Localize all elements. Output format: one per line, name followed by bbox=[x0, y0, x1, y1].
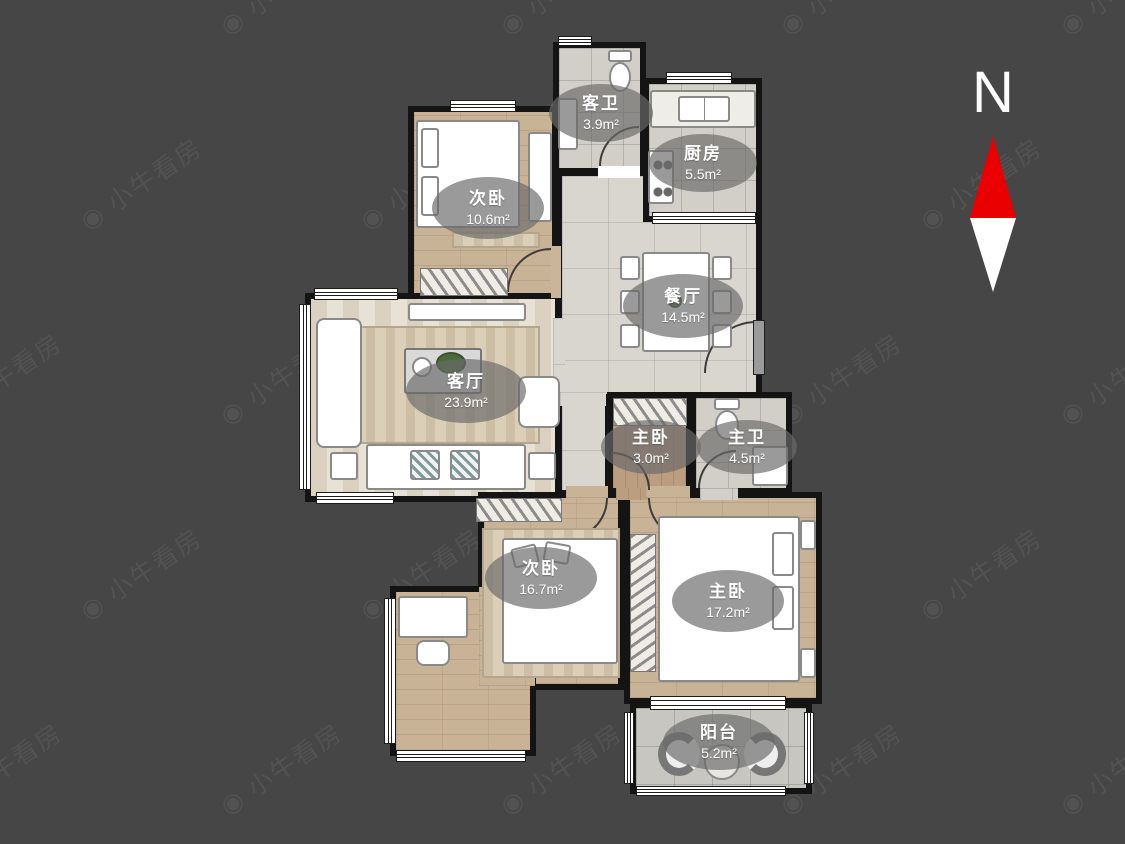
opening-guest-bath-door bbox=[598, 166, 640, 178]
nightstand bbox=[800, 648, 816, 678]
room-name: 次卧 bbox=[522, 558, 560, 580]
sofa bbox=[366, 444, 526, 490]
side-table bbox=[528, 452, 556, 480]
opening-dining-corridor bbox=[560, 392, 606, 406]
room-label-master-bathroom: 主卫 4.5m² bbox=[697, 420, 797, 474]
sofa bbox=[316, 318, 362, 448]
chair bbox=[620, 256, 640, 280]
opening-bedroom-top-door bbox=[551, 246, 561, 298]
room-label-balcony: 阳台 5.2m² bbox=[663, 714, 775, 770]
sliding-door-kitchen bbox=[652, 212, 756, 224]
sliding-door-balcony bbox=[650, 696, 786, 710]
chair bbox=[712, 256, 732, 280]
window bbox=[316, 492, 394, 504]
ottoman bbox=[410, 450, 440, 480]
window bbox=[558, 36, 592, 46]
window bbox=[666, 72, 732, 84]
room-area: 10.6m² bbox=[466, 210, 510, 228]
compass-arrow-south-icon bbox=[970, 218, 1016, 292]
room-name: 厨房 bbox=[684, 143, 722, 165]
opening-master-bath-door bbox=[700, 488, 738, 500]
room-name: 阳台 bbox=[700, 722, 738, 744]
opening-master-door bbox=[646, 486, 690, 498]
chair bbox=[620, 324, 640, 348]
room-name: 主卧 bbox=[632, 427, 670, 449]
pillow bbox=[772, 532, 794, 576]
window bbox=[396, 750, 526, 762]
kitchen-sink-icon bbox=[678, 96, 730, 122]
room-label-master-closet: 主卧 3.0m² bbox=[601, 420, 701, 474]
room-area: 17.2m² bbox=[706, 603, 750, 621]
compass: N bbox=[956, 60, 1030, 292]
nightstand bbox=[800, 520, 816, 550]
room-label-living: 客厅 23.9m² bbox=[406, 359, 526, 423]
room-area: 4.5m² bbox=[729, 449, 765, 467]
pillow bbox=[421, 128, 439, 168]
room-name: 客厅 bbox=[447, 371, 485, 393]
room-area: 3.9m² bbox=[583, 115, 619, 133]
wardrobe-hatch bbox=[476, 498, 562, 522]
room-label-bedroom-top: 次卧 10.6m² bbox=[432, 177, 544, 239]
room-label-master-bedroom: 主卧 17.2m² bbox=[672, 570, 784, 632]
room-name: 餐厅 bbox=[664, 286, 702, 308]
cabinet-hatch bbox=[420, 268, 508, 296]
wardrobe-hatch bbox=[630, 534, 656, 672]
window bbox=[636, 786, 786, 796]
room-area: 5.2m² bbox=[701, 744, 737, 762]
room-area: 5.5m² bbox=[685, 165, 721, 183]
opening-bedroom-2-door bbox=[566, 486, 608, 498]
chair bbox=[416, 640, 450, 666]
room-area: 3.0m² bbox=[633, 449, 669, 467]
compass-north-label: N bbox=[956, 60, 1030, 126]
room-area: 23.9m² bbox=[444, 393, 488, 411]
room-area: 14.5m² bbox=[661, 308, 705, 326]
room-name: 主卧 bbox=[709, 581, 747, 603]
floorplan-screenshot: ◉ 小牛看房◉ 小牛看房◉ 小牛看房◉ 小牛看房◉ 小牛看房◉ 小牛看房◉ 小牛… bbox=[0, 0, 1125, 844]
room-area: 16.7m² bbox=[519, 580, 563, 598]
ottoman bbox=[450, 450, 480, 480]
compass-arrow-north-icon bbox=[970, 136, 1016, 218]
window bbox=[314, 288, 398, 300]
toilet-icon bbox=[608, 50, 632, 62]
room-label-bedroom-2: 次卧 16.7m² bbox=[485, 547, 597, 609]
window bbox=[624, 712, 634, 784]
entry-door-leaf bbox=[753, 320, 765, 375]
room-label-kitchen: 厨房 5.5m² bbox=[649, 134, 757, 192]
window bbox=[804, 712, 814, 784]
toilet-icon bbox=[714, 398, 740, 410]
room-label-dining: 餐厅 14.5m² bbox=[623, 274, 743, 338]
tv-console bbox=[408, 303, 526, 321]
window bbox=[384, 598, 396, 744]
side-table bbox=[330, 452, 358, 480]
room-name: 客卫 bbox=[582, 93, 620, 115]
room-name: 次卧 bbox=[469, 188, 507, 210]
window bbox=[299, 304, 311, 490]
room-name: 主卫 bbox=[728, 427, 766, 449]
room-label-guest-bathroom: 客卫 3.9m² bbox=[549, 84, 653, 142]
desk bbox=[398, 596, 468, 638]
window bbox=[450, 100, 516, 112]
